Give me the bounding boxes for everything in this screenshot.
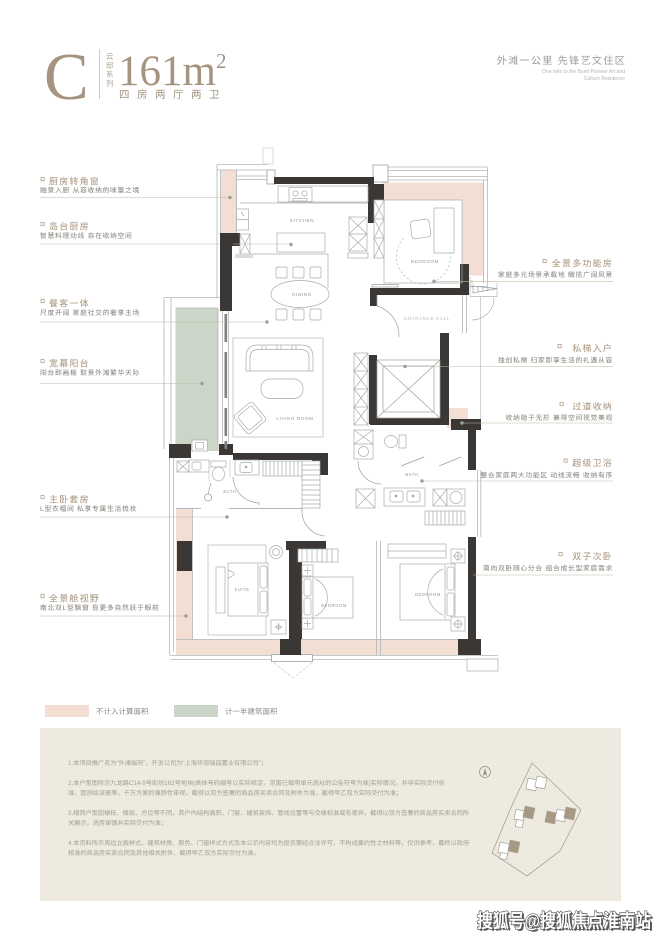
svg-text:主卧套房: 主卧套房 — [49, 495, 90, 505]
svg-text:餐客一体: 餐客一体 — [49, 299, 90, 309]
svg-text:双子次卧: 双子次卧 — [572, 552, 613, 562]
svg-text:ENTRANCE HALL: ENTRANCE HALL — [404, 316, 450, 321]
svg-text:4.本资料所示周边立面样式、建筑材质、颜色、门窗样式方式及本: 4.本资料所示周边立面样式、建筑材质、颜色、门窗样式方式及本公示内容均为投资需经… — [68, 839, 469, 847]
svg-text:南北双L型飘窗 揽更多自然跃于眼前: 南北双L型飘窗 揽更多自然跃于眼前 — [40, 604, 160, 612]
svg-text:计一半建筑面积: 计一半建筑面积 — [225, 707, 278, 716]
svg-text:家庭多元场景承载地 瞰揽广阔风景: 家庭多元场景承载地 瞰揽广阔风景 — [498, 271, 613, 279]
svg-text:系: 系 — [106, 70, 114, 79]
svg-text:BATH: BATH — [223, 489, 236, 494]
svg-text:核准的商品房买卖合同及其他相关附件、截得甲乙双方实际交付为准: 核准的商品房买卖合同及其他相关附件、截得甲乙双方实际交付为准。 — [68, 849, 260, 857]
svg-text:3.相同户型因楼栋、楼层、方位等不同，其户内结构面积、门窗、: 3.相同户型因楼栋、楼层、方位等不同，其户内结构面积、门窗、建筑装饰、管线位置等… — [68, 809, 469, 817]
svg-text:全景舱视野: 全景舱视野 — [49, 594, 100, 604]
svg-text:Culture Residence: Culture Residence — [584, 76, 625, 82]
svg-text:云: 云 — [106, 52, 114, 61]
svg-text:融景入厨 从容收纳的味蕾之境: 融景入厨 从容收纳的味蕾之境 — [40, 187, 140, 195]
svg-text:BEDROOM: BEDROOM — [415, 592, 441, 597]
svg-text:搜狐号@搜狐焦点淮南站: 搜狐号@搜狐焦点淮南站 — [477, 911, 651, 933]
svg-text:全景多功能房: 全景多功能房 — [552, 259, 613, 269]
svg-text:整合家庭两大功能区 动线流畅 收纳有序: 整合家庭两大功能区 动线流畅 收纳有序 — [480, 472, 613, 480]
svg-text:厨房转角窗: 厨房转角窗 — [49, 177, 100, 187]
svg-text:KITCHEN: KITCHEN — [290, 218, 314, 223]
svg-text:邸: 邸 — [106, 61, 114, 70]
svg-text:宽幕阳台: 宽幕阳台 — [49, 359, 90, 369]
svg-text:BEDROOM: BEDROOM — [411, 259, 439, 264]
svg-text:One mile to the Bund Pioneer A: One mile to the Bund Pioneer Art and — [542, 69, 625, 75]
svg-text:L型衣帽间 私享专属生活梳妆: L型衣帽间 私享专属生活梳妆 — [40, 505, 137, 513]
svg-text:阳台即画框 取景外滩繁华天际: 阳台即画框 取景外滩繁华天际 — [40, 369, 140, 377]
svg-text:LIVING ROOM: LIVING ROOM — [276, 416, 313, 421]
svg-text:超级卫浴: 超级卫浴 — [572, 458, 613, 468]
svg-text:过道收纳: 过道收纳 — [572, 402, 613, 412]
svg-text:列: 列 — [106, 79, 114, 88]
svg-text:独创私梯 归家即享生活的礼遇从容: 独创私梯 归家即享生活的礼遇从容 — [498, 357, 613, 365]
svg-text:尺度开阔 家庭社交的奢享主场: 尺度开阔 家庭社交的奢享主场 — [40, 309, 140, 317]
svg-text:不计入计算面积: 不计入计算面积 — [96, 707, 149, 716]
svg-text:DINING: DINING — [292, 292, 312, 297]
svg-text:161m2: 161m2 — [118, 48, 226, 95]
svg-text:C: C — [44, 40, 89, 114]
svg-text:外滩一公里 先锋艺文住区: 外滩一公里 先锋艺文住区 — [497, 55, 626, 67]
svg-text:私梯入户: 私梯入户 — [572, 344, 613, 354]
svg-text:准，因测绘误差等，千万方案的兼顾性审视，截得以双方签署的商品: 准，因测绘误差等，千万方案的兼顾性审视，截得以双方签署的商品房买卖合同及附件为准… — [68, 789, 402, 797]
svg-text:1.本项目推广名为“外滩瑞府”，开发公司为“上海华润瑞喆置业: 1.本项目推广名为“外滩瑞府”，开发公司为“上海华润瑞喆置业有限公司”； — [68, 759, 267, 767]
svg-text:岛台厨房: 岛台厨房 — [49, 222, 90, 232]
svg-text:智慧料理动线 自在收纳空间: 智慧料理动线 自在收纳空间 — [40, 232, 133, 240]
svg-text:SUITE: SUITE — [234, 587, 249, 592]
svg-text:收纳隐于无形 兼得空间视觉美观: 收纳隐于无形 兼得空间视觉美观 — [505, 414, 613, 422]
svg-text:BEDROOM: BEDROOM — [321, 603, 347, 608]
svg-text:BATH: BATH — [405, 472, 418, 477]
svg-text:2.本户型图所示九龙路C14-9号街坊162号地块(具体号码: 2.本户型图所示九龙路C14-9号街坊162号地块(具体号码编号以实际核定，范围… — [68, 779, 445, 787]
svg-text:四房两厅两卫: 四房两厅两卫 — [119, 89, 227, 101]
svg-text:南向双卧随心分合 组合成长型家庭需求: 南向双卧随心分合 组合成长型家庭需求 — [483, 565, 613, 573]
svg-text:关展示，选房审慎并实际交付为准；: 关展示，选房审慎并实际交付为准； — [68, 819, 167, 827]
